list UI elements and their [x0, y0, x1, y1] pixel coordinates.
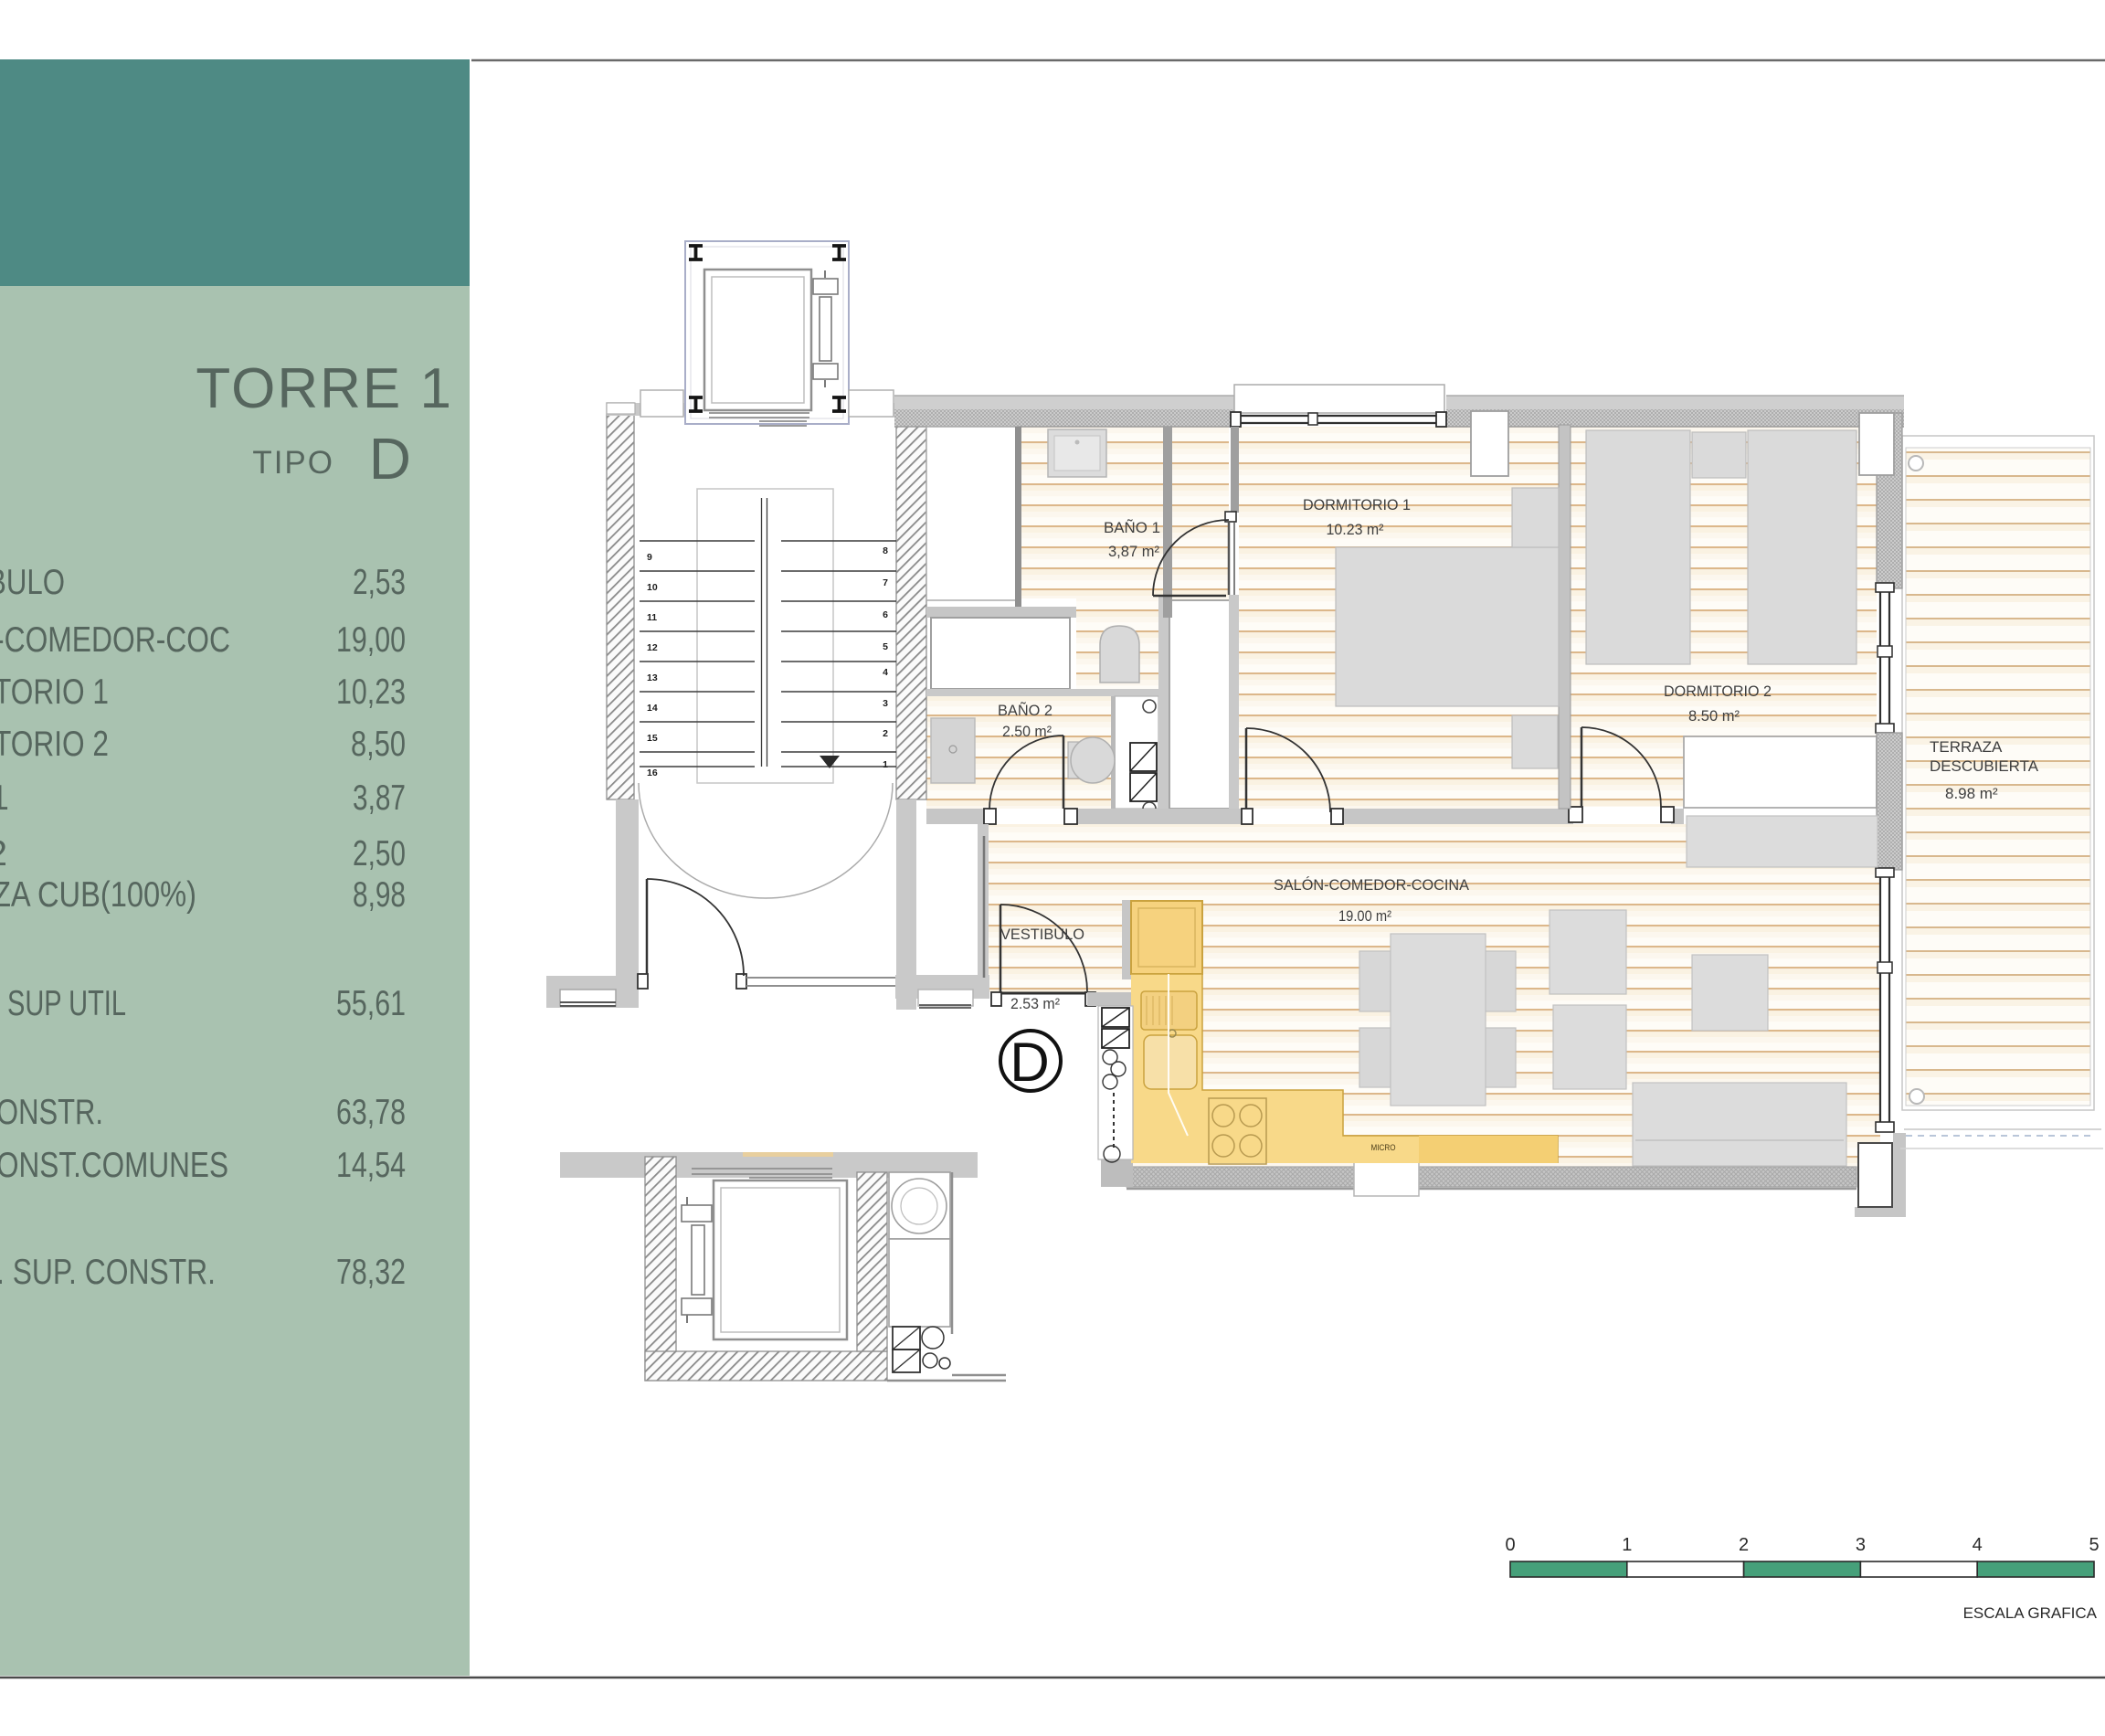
- svg-text:5: 5: [2089, 1535, 2099, 1555]
- svg-text:4: 4: [883, 667, 888, 678]
- svg-text:1: 1: [0, 778, 9, 818]
- svg-text:2: 2: [883, 728, 888, 739]
- svg-text:8,98: 8,98: [353, 875, 406, 915]
- svg-text:19.00 m²: 19.00 m²: [1338, 907, 1391, 925]
- svg-text:BAÑO 1: BAÑO 1: [1104, 519, 1160, 536]
- svg-text:11: 11: [647, 612, 657, 623]
- svg-text:2,50: 2,50: [353, 834, 406, 873]
- svg-text:8.50 m²: 8.50 m²: [1688, 707, 1740, 725]
- svg-text:8,50: 8,50: [351, 725, 406, 764]
- svg-text:1: 1: [1622, 1535, 1632, 1555]
- svg-text:19,00: 19,00: [336, 620, 406, 660]
- svg-text:14: 14: [647, 703, 658, 714]
- svg-text:SALÓN-COMEDOR-COCINA: SALÓN-COMEDOR-COCINA: [1274, 876, 1470, 894]
- svg-text:2.53 m²: 2.53 m²: [1010, 995, 1060, 1012]
- svg-text:3,87 m²: 3,87 m²: [1108, 543, 1159, 560]
- svg-text:VESTIBULO: VESTIBULO: [1000, 926, 1084, 943]
- svg-text:12: 12: [647, 642, 658, 653]
- svg-text:3: 3: [883, 698, 888, 709]
- svg-text:4: 4: [1973, 1535, 1983, 1555]
- svg-text:BAÑO 2: BAÑO 2: [998, 702, 1052, 719]
- svg-text:7: 7: [883, 577, 888, 588]
- svg-text:-COMEDOR-COC: -COMEDOR-COC: [0, 620, 230, 660]
- svg-text:TORIO 2: TORIO 2: [0, 725, 109, 764]
- svg-text:MICRO: MICRO: [1371, 1143, 1396, 1153]
- svg-text:TIPO: TIPO: [252, 445, 334, 481]
- svg-text:13: 13: [647, 672, 658, 683]
- svg-text:TORRE 1: TORRE 1: [196, 357, 453, 420]
- svg-text:ONST.COMUNES: ONST.COMUNES: [0, 1146, 228, 1185]
- svg-text:3,87: 3,87: [353, 778, 406, 818]
- svg-text:DORMITORIO 2: DORMITORIO 2: [1664, 683, 1772, 700]
- svg-text:63,78: 63,78: [336, 1093, 406, 1132]
- svg-text:6: 6: [883, 609, 888, 620]
- svg-text:ONSTR.: ONSTR.: [0, 1093, 103, 1132]
- svg-text:14,54: 14,54: [336, 1146, 406, 1185]
- svg-text:5: 5: [883, 641, 888, 652]
- svg-text:SUP UTIL: SUP UTIL: [7, 984, 126, 1023]
- svg-text:. SUP. CONSTR.: . SUP. CONSTR.: [0, 1253, 216, 1292]
- svg-text:55,61: 55,61: [336, 984, 406, 1023]
- svg-text:10: 10: [647, 582, 658, 593]
- svg-text:16: 16: [647, 767, 658, 778]
- svg-text:9: 9: [647, 552, 652, 563]
- svg-text:2.50 m²: 2.50 m²: [1002, 723, 1052, 740]
- svg-text:1: 1: [883, 759, 888, 770]
- svg-text:2: 2: [0, 834, 7, 873]
- svg-text:10.23 m²: 10.23 m²: [1327, 521, 1384, 538]
- svg-text:DORMITORIO 1: DORMITORIO 1: [1303, 496, 1411, 513]
- svg-text:TERRAZA: TERRAZA: [1930, 738, 2003, 756]
- svg-text:10,23: 10,23: [336, 672, 406, 712]
- svg-text:8.98 m²: 8.98 m²: [1945, 785, 1998, 802]
- svg-text:ZA CUB(100%): ZA CUB(100%): [0, 875, 196, 915]
- svg-text:2: 2: [1739, 1535, 1749, 1555]
- svg-text:ESCALA GRAFICA: ESCALA GRAFICA: [1963, 1604, 2098, 1622]
- svg-text:8: 8: [883, 545, 888, 556]
- svg-text:D: D: [369, 426, 411, 492]
- svg-text:D: D: [1010, 1032, 1049, 1093]
- svg-text:DESCUBIERTA: DESCUBIERTA: [1930, 757, 2039, 775]
- svg-text:15: 15: [647, 733, 658, 744]
- svg-text:BULO: BULO: [0, 563, 65, 602]
- svg-text:2,53: 2,53: [353, 563, 406, 602]
- svg-text:TORIO 1: TORIO 1: [0, 672, 109, 712]
- svg-text:78,32: 78,32: [336, 1253, 406, 1292]
- svg-text:3: 3: [1856, 1535, 1866, 1555]
- svg-text:0: 0: [1505, 1535, 1515, 1555]
